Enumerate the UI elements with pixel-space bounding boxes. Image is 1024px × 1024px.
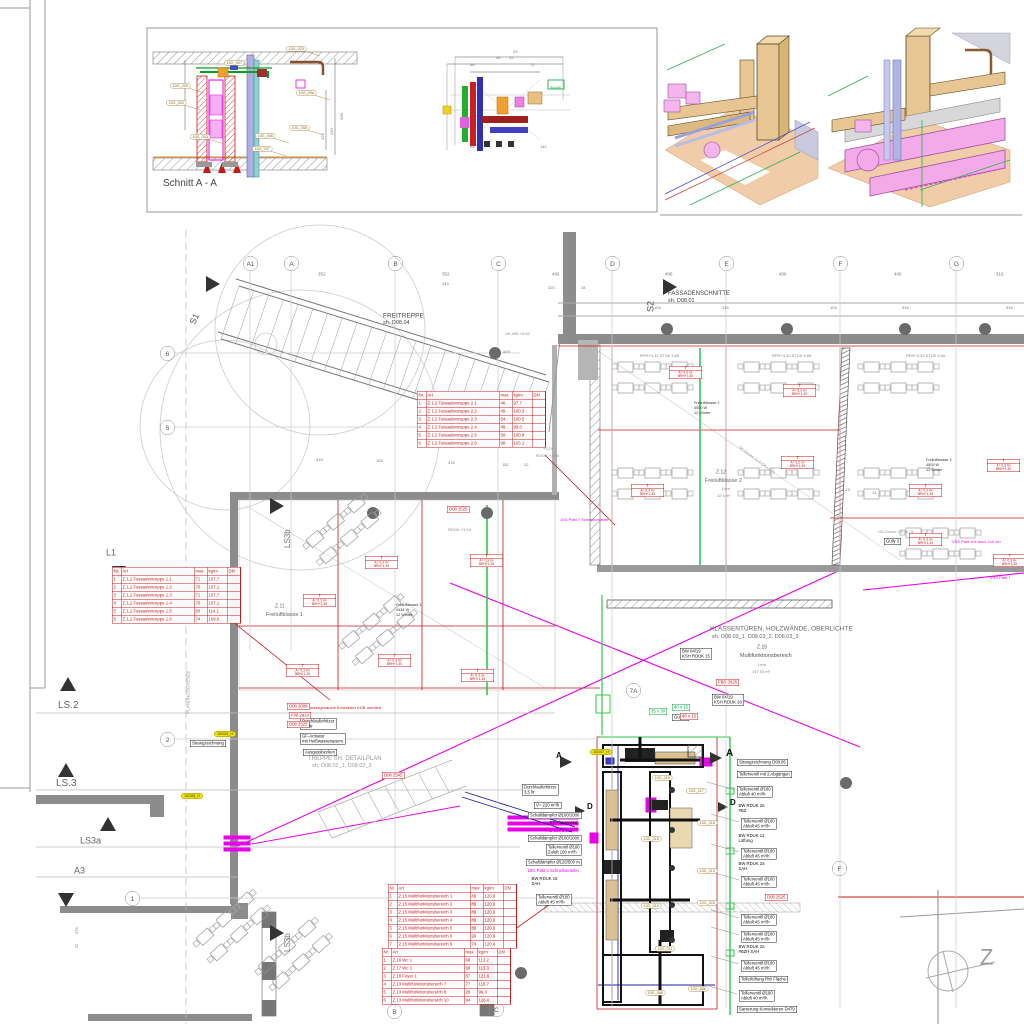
- duct-id-tag: 10G_017: [686, 788, 706, 794]
- callout-line: KSH RDUK 26: [714, 700, 742, 705]
- table-cell: 4: [389, 916, 398, 924]
- room-tag-line: BRH+1,35: [304, 603, 336, 607]
- table-cell: 71: [195, 591, 208, 599]
- annotation: 4434 W: [396, 608, 409, 612]
- callout-box: Schalldämpfer Ø125/500 m: [526, 859, 582, 866]
- table-cell: 126.0: [478, 996, 498, 1004]
- callout-box: Tellerventil Ø100Abluft 45 m³/h: [741, 931, 777, 943]
- table-cell: 1: [113, 575, 122, 583]
- table-cell: [498, 956, 511, 964]
- room-data-tag: 7A= 0,3 m²BRH+1,35: [378, 654, 411, 667]
- table-header-cell: kg/m: [513, 392, 533, 400]
- duct-id-tag: 10G_016: [652, 775, 672, 781]
- callout-line: V= 220 m³/h: [536, 803, 559, 808]
- annotation: RPH+3,32 STUK 6,66: [906, 354, 945, 358]
- text-layer: Schnitt A - A Z FREITREPPEsh. D08.04FASS…: [0, 0, 1024, 1024]
- grid-bubble: G: [949, 256, 964, 271]
- table-cell: [498, 996, 511, 1004]
- table-cell: [504, 916, 517, 924]
- callout-line: Abluft 45 m³/h: [743, 824, 775, 829]
- annotation: 12 Winter: [694, 411, 710, 415]
- table-cell: [533, 431, 546, 439]
- duct-id-tag: 10G_007: [224, 60, 244, 66]
- annotation: 316: [316, 458, 323, 462]
- table-cell: 100.3: [513, 407, 533, 415]
- grid-bubble: C: [491, 256, 506, 271]
- table-cell: 6: [418, 439, 427, 447]
- table-cell: [228, 591, 241, 599]
- room-tag-line: BRH+1,35: [670, 375, 702, 379]
- table-cell: [533, 439, 546, 447]
- room-data-tag: 7A= 0,3 m²BRH+1,35: [303, 594, 336, 607]
- callout-box: Gully 2: [884, 538, 901, 545]
- table-cell: 28: [465, 988, 478, 996]
- table-cell: 90: [471, 932, 484, 940]
- annotation: 4500 W: [694, 406, 707, 410]
- annotation: LS3b: [284, 529, 292, 548]
- grid-bubble: A1: [243, 256, 258, 271]
- callout-line: Strangzeichnung D08.05: [739, 760, 786, 765]
- table-cell: 89: [471, 900, 484, 908]
- annotation: LS3a: [80, 836, 101, 845]
- annotation: 140: [540, 145, 547, 149]
- table-cell: Z.1.1 Fassadentreppe 1.3: [122, 591, 195, 599]
- callout-box: GF-Armaturmit Heißwassersperre: [300, 733, 345, 745]
- dimension-label: 406: [552, 272, 560, 277]
- callout-box: BT-Thermostat: [548, 820, 579, 826]
- callout-line: D08 2525: [767, 895, 785, 900]
- annotation: Freiluftklasse 2: [705, 478, 742, 484]
- dimension-label: 406: [779, 272, 787, 277]
- room-tag-line: BRH+1,35: [379, 663, 411, 667]
- table-cell: 96.3: [478, 988, 498, 996]
- annotation: 316: [448, 461, 455, 465]
- annotation: LS3b: [284, 933, 292, 952]
- table-cell: Z.16 Wc 1: [392, 956, 465, 964]
- table-header-cell: kg/m: [478, 949, 498, 957]
- annotation: 147.03 m²: [752, 670, 770, 674]
- table-cell: 6: [389, 932, 398, 940]
- annotation: 22: [524, 463, 528, 467]
- table-cell: Z.15 Multifunktionsbereich 5: [398, 924, 471, 932]
- dimension-label: 406: [665, 272, 673, 277]
- callout-box: FBD 3025: [716, 679, 739, 686]
- annotation: A: [726, 748, 733, 759]
- grid-bubble: 2: [160, 732, 175, 747]
- room-tag-line: BRH+1,35: [632, 493, 664, 497]
- table-cell: 5: [418, 431, 427, 439]
- table-cell: [533, 423, 546, 431]
- annotation: LS.2: [58, 700, 79, 711]
- dimension-label: 406: [894, 272, 902, 277]
- grid-bubble: 7A: [626, 683, 641, 698]
- table-cell: 5: [389, 924, 398, 932]
- callout-box: Tellerventil mit 2 Abgängen: [737, 771, 792, 778]
- table-cell: Z 1.2 Fassadentreppe 2.1: [427, 399, 500, 407]
- table-cell: Z.18 Foyer 1: [392, 972, 465, 980]
- highlight-tag: 10G03_H: [214, 731, 236, 737]
- dimension-label: 352: [442, 272, 450, 277]
- callout-line: #BZH SAH: [739, 949, 765, 954]
- room-data-tag: 7A= 0,3 m²BRH+1,35: [781, 456, 814, 469]
- table-cell: 4: [418, 423, 427, 431]
- cad-drawing-sheet: Schnitt A - A Z FREITREPPEsh. D08.04FASS…: [0, 0, 1024, 1024]
- callout-box: 10G Pakt 3 Schnellverteiler: [526, 868, 581, 874]
- callout-line: 3,5 ltr: [524, 790, 556, 795]
- callout-box: Schalldämpfer Ø100/1000: [528, 812, 581, 819]
- callout-line: FBD 3025: [718, 680, 737, 685]
- table-cell: Z.1.1 Fassadentreppe 1.6: [122, 615, 195, 623]
- table-cell: 87: [465, 972, 478, 980]
- table-cell: 89: [471, 916, 484, 924]
- annotation: sh. D08.03_1, D08.03_2, D08.03_3: [712, 634, 799, 640]
- annotation: Freiluftklasse 1: [396, 603, 422, 607]
- room-data-tag: 7A= 0,3 m²BRH+1,35: [461, 669, 494, 682]
- callout-line: D08 2525: [289, 722, 307, 727]
- table-cell: [504, 900, 517, 908]
- table-cell: Z.15 Multifunktionsbereich 1: [398, 892, 471, 900]
- room-tag-line: BRH+1,35: [994, 563, 1024, 567]
- annotation: 152: [502, 463, 509, 467]
- table-cell: [498, 988, 511, 996]
- annotation: Z.15: [757, 645, 767, 650]
- grid-bubble: F: [833, 256, 848, 271]
- callout-box: Tellerventil Ø100Abluft 45 m³/h: [741, 960, 777, 972]
- annotation: +3,70: [543, 447, 553, 451]
- table-cell: [498, 980, 511, 988]
- annotation: S1: [188, 312, 201, 326]
- room-tag-line: BRH+1,35: [287, 673, 319, 677]
- callout-line: Schalldämpfer Ø125/500 m: [528, 860, 580, 865]
- table-cell: Z.1.1 Fassadentreppe 1.1: [122, 575, 195, 583]
- table-cell: 120.9: [484, 892, 504, 900]
- annotation: Freiluftklasse 2: [694, 401, 720, 405]
- annotation: KLASSENTÜREN, HOLZWÄNDE, OBERLICHTE: [710, 625, 853, 632]
- table-cell: 83: [195, 607, 208, 615]
- annotation: GK-Decke 12,5 OK+3,70: [737, 445, 775, 475]
- load-table: Nr.Artmaxkg/mDN1Z.15 Multifunktionsberei…: [388, 884, 517, 949]
- annotation: 44: [496, 56, 500, 60]
- duct-id-tag: 10G_015: [641, 836, 661, 842]
- annotation: L1: [106, 548, 116, 557]
- table-header-cell: Art: [398, 885, 471, 893]
- annotation: 30x35: [550, 86, 561, 90]
- callout-box: D08 2545: [382, 772, 404, 779]
- callout-line: #BZ: [739, 808, 765, 813]
- load-table: Nr.Artmaxkg/mDN1Z.16 Wc 168113.22Z.17 Wc…: [382, 948, 511, 1005]
- annotation: nach massgenauem Achsraster KGB montiert: [300, 706, 381, 710]
- table-cell: [533, 399, 546, 407]
- annotation: VSS Pakt 10x mod. 110 cm: [952, 540, 1001, 544]
- table-header-cell: DN: [498, 949, 511, 957]
- grid-bubble: E: [719, 256, 734, 271]
- annotation: ROOK +3,54: [536, 454, 559, 458]
- table-cell: Z.1.1 Fassadentreppe 1.4: [122, 599, 195, 607]
- table-cell: 3: [389, 908, 398, 916]
- table-cell: Z.15 Multifunktionsbereich 2: [398, 900, 471, 908]
- table-cell: Z.1.1 Fassadentreppe 1.2: [122, 583, 195, 591]
- callout-box: Strangzeichnung D08.05: [737, 759, 788, 766]
- callout-line: Abluft 45 m³/h: [743, 937, 775, 942]
- callout-line: BT-Thermostat: [550, 821, 578, 826]
- duct-id-tag: 10G_023: [286, 46, 306, 52]
- section-title: Schnitt A - A: [163, 178, 217, 189]
- annotation: FREITREPPE: [383, 312, 424, 319]
- table-cell: 3: [418, 415, 427, 423]
- table-header-cell: Nr.: [113, 568, 122, 576]
- room-data-tag: 7A= 0,3 m²BRH+1,35: [909, 484, 942, 497]
- table-cell: [504, 940, 517, 948]
- annotation: 72: [530, 63, 534, 67]
- grid-bubble: 5: [160, 420, 175, 435]
- table-cell: 99.0: [513, 423, 533, 431]
- callout-box: TAB 500 DUB 4: [543, 828, 576, 834]
- callout-line: Tellerlüftung RW Fläche: [741, 977, 786, 982]
- callout-box: Tellerventil Ø100Abluft 45 m³/h: [536, 894, 572, 906]
- room-data-tag: 7A= 0,3 m²BRH+1,35: [631, 484, 664, 497]
- table-cell: [228, 575, 241, 583]
- annotation: 316: [902, 306, 909, 310]
- annotation: sh. D08.04: [383, 320, 410, 326]
- annotation: 43: [470, 145, 474, 149]
- table-header-cell: Nr.: [383, 949, 392, 957]
- table-cell: 97.7: [513, 399, 533, 407]
- callout-line: Strangzeichnung: [192, 741, 224, 746]
- callout-box: BW 04/19KSH RDUK 15: [680, 648, 712, 660]
- annotation: Z.11: [275, 604, 285, 609]
- callout-box: Tellerlüftung RW Fläche: [739, 976, 788, 983]
- table-cell: Z 1.2 Fassadentreppe 2.6: [427, 439, 500, 447]
- annotation: TREPPE SH. DETAILPLAN: [308, 755, 382, 761]
- room-tag-line: BRH+1,35: [782, 465, 814, 469]
- table-header-cell: Art: [427, 392, 500, 400]
- callout-box: V= 220 m³/h: [534, 802, 561, 809]
- callout-line: Gully 2: [886, 539, 899, 544]
- table-cell: 120.9: [484, 900, 504, 908]
- callout-box: Ausgussbecken: [303, 749, 337, 756]
- table-cell: 89: [471, 892, 484, 900]
- callout-line: Lüftung: [739, 838, 765, 843]
- callout-line: Sanierung Konvektoren D479: [739, 1007, 795, 1012]
- annotation: 29: [513, 50, 517, 54]
- callout-box: BW RDUK 12Lüftung: [737, 833, 766, 844]
- table-cell: 58: [500, 431, 513, 439]
- callout-box: BW RDUK 2a#BZ: [737, 803, 766, 814]
- duct-id-tag: 10G_009: [170, 83, 190, 89]
- annotation: A3: [74, 866, 85, 875]
- table-cell: [533, 407, 546, 415]
- duct-id-tag: 10G_068: [645, 990, 665, 996]
- callout-line: Abluft 45 m³/h: [743, 854, 775, 859]
- duct-id-tag: 10G_002: [166, 100, 186, 106]
- grid-bubble: D: [605, 256, 620, 271]
- room-tag-line: BRH+1,35: [910, 542, 942, 546]
- table-header-cell: Art: [122, 568, 195, 576]
- room-data-tag: 7A= 0,3 m²BRH+1,35: [669, 366, 702, 379]
- table-cell: Z 1.2 Fassadentreppe 2.4: [427, 423, 500, 431]
- callout-line: D08 2545: [384, 773, 402, 778]
- annotation: PLANUNGSGRENZE: [186, 670, 191, 714]
- table-cell: 100.9: [513, 431, 533, 439]
- table-cell: 2: [418, 407, 427, 415]
- annotation: Z.12: [716, 470, 726, 475]
- annotation: Freiluftklasse 1: [266, 612, 303, 618]
- table-cell: [228, 583, 241, 591]
- annotation: 376: [75, 927, 79, 934]
- annotation: Freiluftklasse 3: [926, 458, 952, 462]
- table-cell: 74: [471, 940, 484, 948]
- table-cell: 7: [389, 940, 398, 948]
- grid-bubble: A: [284, 256, 299, 271]
- annotation: 220: [548, 286, 555, 290]
- callout-line: Abluft 45 m³/h: [538, 900, 570, 905]
- table-cell: 74: [195, 615, 208, 623]
- highlight-tag: 10G07_H: [590, 749, 612, 755]
- table-cell: 107.1: [208, 599, 228, 607]
- table-cell: Z.15 Multifunktionsbereich 6: [398, 932, 471, 940]
- annotation: RPH+3,32 STUK 6,66: [640, 354, 679, 358]
- annotation: UK-WD +5,62: [505, 332, 530, 336]
- callout-line: SAH: [532, 881, 558, 886]
- dimension-label: 316: [996, 272, 1004, 277]
- table-cell: [498, 964, 511, 972]
- callout-line: 40 x 15: [682, 714, 696, 719]
- table-cell: [498, 972, 511, 980]
- annotation: 130: [330, 128, 334, 135]
- table-cell: 6: [383, 996, 392, 1004]
- table-cell: 68: [465, 964, 478, 972]
- callout-box: 40 x 15: [672, 704, 690, 711]
- duct-id-tag: 10G_019: [697, 868, 717, 874]
- room-tag-line: BRH+1,35: [988, 468, 1020, 472]
- callout-line: Ausgussbecken: [305, 750, 335, 755]
- callout-line: D08 2008: [289, 704, 307, 709]
- table-cell: Z 1.2 Fassadentreppe 2.5: [427, 431, 500, 439]
- table-cell: 1: [389, 892, 398, 900]
- table-header-cell: kg/m: [208, 568, 228, 576]
- room-tag-line: BRH+1,35: [366, 565, 398, 569]
- table-cell: 109.6: [208, 615, 228, 623]
- room-data-tag: 7A= 0,3 m²BRH+1,35: [987, 459, 1020, 472]
- table-cell: 100.5: [513, 415, 533, 423]
- table-cell: 71: [195, 575, 208, 583]
- table-cell: 120.4: [484, 940, 504, 948]
- callout-box: Tellerventil Ø100Abluft 40 m³/h: [739, 990, 775, 1002]
- table-cell: [533, 415, 546, 423]
- table-cell: 2: [113, 583, 122, 591]
- callout-line: KSH RDUK 15: [682, 654, 710, 659]
- duct-id-tag: 10G_003: [190, 134, 210, 140]
- callout-box: Strangzeichnung: [190, 740, 226, 747]
- annotation: 124: [321, 133, 325, 140]
- callout-box: Tellerventil Ø100Zuluft 100 m³/h: [546, 844, 582, 856]
- annotation: 316: [722, 306, 729, 310]
- room-data-tag: 7A= 0,3 m²BRH+1,35: [470, 554, 503, 567]
- table-cell: 5: [113, 607, 122, 615]
- room-tag-line: BRH+1,35: [910, 493, 942, 497]
- table-cell: 70: [195, 583, 208, 591]
- duct-id-tag: 10G_020: [697, 900, 717, 906]
- annotation: 14: [872, 491, 876, 495]
- callout-box: 35 x 30: [649, 708, 667, 715]
- callout-box: Durchlauferhitzer3,5 ltr: [522, 784, 558, 796]
- table-cell: 2: [383, 964, 392, 972]
- grid-bubble: 6: [160, 346, 175, 361]
- annotation: VSS Pakt 7: [990, 576, 1010, 580]
- callout-box: F08 2a10: [289, 712, 311, 719]
- table-cell: Z.13 Multifunktionsbereich 8: [392, 988, 465, 996]
- table-cell: 120.9: [484, 916, 504, 924]
- table-cell: 3: [113, 591, 122, 599]
- duct-id-tag: 10G_011: [655, 946, 675, 952]
- annotation: A: [556, 752, 562, 760]
- table-cell: 107.7: [208, 591, 228, 599]
- annotation: D: [730, 799, 736, 807]
- annotation: 10G Pakt 7 Schnellverteiler: [560, 518, 608, 522]
- duct-id-tag: 10G_088: [688, 986, 708, 992]
- callout-box: BW RDUK 2a#BZH SAH: [737, 944, 766, 955]
- annotation: 343: [442, 282, 449, 286]
- highlight-tag: 10G05_H: [181, 793, 203, 799]
- callout-box: D08 2008: [287, 703, 309, 710]
- grid-bubble: 1: [125, 891, 140, 906]
- annotation: 12 Winter: [926, 468, 942, 472]
- callout-line: SAH: [739, 866, 765, 871]
- callout-line: Schalldämpfer Ø100/1000: [530, 813, 579, 818]
- table-cell: 3: [383, 972, 392, 980]
- table-cell: [228, 615, 241, 623]
- table-header-cell: max: [195, 568, 208, 576]
- grid-bubble: B: [388, 256, 403, 271]
- annotation: 4505 W: [926, 463, 939, 467]
- annotation: FASSADENSCHNITTE: [668, 290, 730, 296]
- table-header-cell: Art: [392, 949, 465, 957]
- table-header-cell: DN: [533, 392, 546, 400]
- callout-line: Abluft 45 m³/h: [743, 966, 775, 971]
- room-data-tag: 7A= 0,3 m²BRH+1,35: [783, 384, 816, 397]
- room-data-tag: 7A= 0,3 m²BRH+1,35: [909, 533, 942, 546]
- room-data-tag: 7A= 0,3 m²BRH+1,35: [286, 664, 319, 677]
- callout-line: TAB 500 DUB 4: [545, 829, 575, 834]
- table-cell: 89: [471, 908, 484, 916]
- callout-line: Abluft 40 m³/h: [741, 996, 773, 1001]
- callout-box: D08 2525: [287, 721, 309, 728]
- table-cell: [504, 932, 517, 940]
- table-cell: [228, 599, 241, 607]
- table-cell: Z.17 Wc 1: [392, 964, 465, 972]
- annotation: 104: [830, 306, 837, 310]
- table-cell: 1: [418, 399, 427, 407]
- table-cell: 49: [500, 407, 513, 415]
- table-header-cell: kg/m: [484, 885, 504, 893]
- table-cell: 113.3: [478, 964, 498, 972]
- callout-box: Tellerventil Ø100Abluft 45 m³/h: [741, 876, 777, 888]
- table-cell: Z.13 Multifunktionsbereich 10: [392, 996, 465, 1004]
- callout-box: Sanierung Konvektoren D479: [737, 1006, 797, 1013]
- callout-line: F08 2a10: [291, 713, 309, 718]
- annotation: 52: [75, 944, 79, 948]
- table-cell: 1: [383, 956, 392, 964]
- table-cell: 77: [465, 980, 478, 988]
- table-cell: 89: [471, 924, 484, 932]
- callout-line: D08 2525: [449, 507, 467, 512]
- annotation: Lern: [758, 663, 766, 667]
- callout-box: Tellerventil Ø100Abluft 45 m³/h: [741, 818, 777, 830]
- grid-bubble: B: [387, 1004, 402, 1019]
- table-header-cell: DN: [228, 568, 241, 576]
- table-cell: 120.9: [484, 932, 504, 940]
- table-cell: 4: [383, 980, 392, 988]
